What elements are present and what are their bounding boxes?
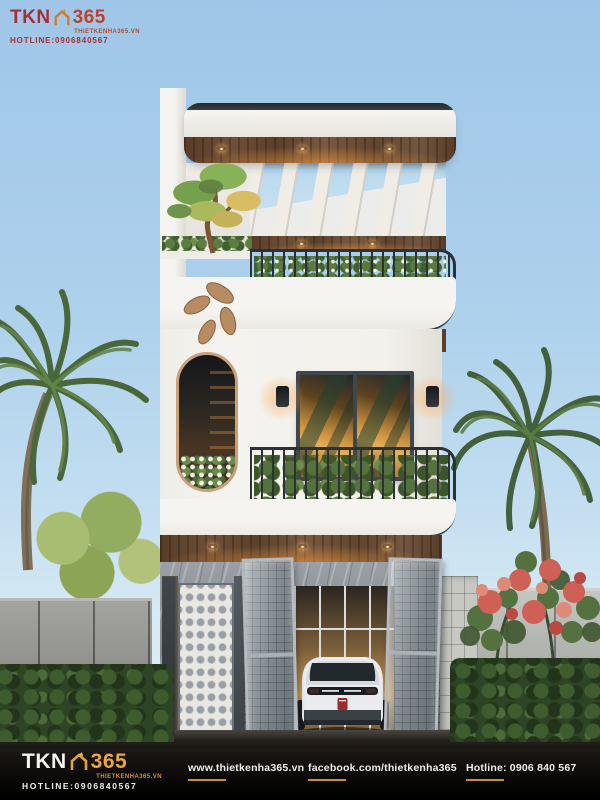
second-balcony-fascia — [160, 499, 456, 537]
footer-logo: TKN 365 THIETKENHA365.VN HOTLINE:0906840… — [22, 751, 162, 791]
oval-window-shelves — [210, 371, 235, 451]
website-text: www.thietkenha365.vn — [188, 762, 304, 774]
roof-trim — [184, 103, 456, 110]
downlight-icon — [368, 241, 377, 246]
roof-slab — [184, 103, 456, 163]
brand-tagline: THIETKENHA365.VN — [22, 774, 162, 780]
open-gate-left — [241, 557, 298, 740]
render-canvas: TKN 365 THIETKENHA365.VN HOTLINE:0906840… — [0, 0, 600, 800]
flowering-bush — [456, 540, 600, 672]
house-outline-icon — [53, 9, 71, 27]
oval-window-flowers — [179, 455, 235, 489]
wall-lamp-icon — [426, 386, 439, 407]
brand-hotline: HOTLINE:0906840567 — [10, 36, 140, 45]
downlight-icon — [298, 544, 307, 549]
white-suv-car — [292, 640, 393, 740]
downlight-icon — [297, 241, 306, 246]
pergola-slats — [250, 162, 446, 240]
open-gate-right — [383, 557, 442, 738]
right-hedge — [450, 658, 600, 742]
brand-365: 365 — [73, 8, 106, 27]
downlight-icon — [217, 146, 226, 151]
hotline-link: Hotline: 0906 840 567 — [466, 762, 576, 781]
house-outline-icon — [69, 752, 89, 772]
roof-fascia — [184, 110, 456, 137]
website-link: www.thietkenha365.vn — [188, 762, 304, 781]
downlight-icon — [298, 146, 307, 151]
footer-brand-bar: TKN 365 THIETKENHA365.VN HOTLINE:0906840… — [0, 748, 600, 800]
top-watermark-logo: TKN 365 THIETKENHA365.VN HOTLINE:0906840… — [10, 8, 140, 45]
facebook-link: facebook.com/thietkenha365 — [308, 762, 457, 781]
hotline-text: Hotline: 0906 840 567 — [466, 762, 576, 774]
link-underline — [308, 779, 346, 781]
oval-window — [176, 352, 238, 492]
brand-tagline: THIETKENHA365.VN — [10, 29, 140, 35]
brand-tkn: TKN — [10, 8, 51, 27]
wall-lamp-icon — [276, 386, 289, 407]
downlight-icon — [385, 146, 394, 151]
link-underline — [188, 779, 226, 781]
brand-tkn: TKN — [22, 751, 67, 772]
downlight-icon — [208, 544, 217, 549]
leaf-wall-decor — [180, 280, 244, 348]
rooftop-pergola — [250, 162, 446, 240]
left-background-tree — [18, 490, 168, 605]
downlight-icon — [383, 544, 392, 549]
perforated-pedestrian-door — [178, 583, 234, 739]
link-underline — [466, 779, 504, 781]
rooftop-bonsai-tree — [166, 156, 264, 254]
brand-hotline: HOTLINE:0906840567 — [22, 781, 162, 791]
brand-365: 365 — [91, 751, 128, 772]
left-hedge — [0, 664, 174, 742]
facebook-text: facebook.com/thietkenha365 — [308, 762, 457, 774]
